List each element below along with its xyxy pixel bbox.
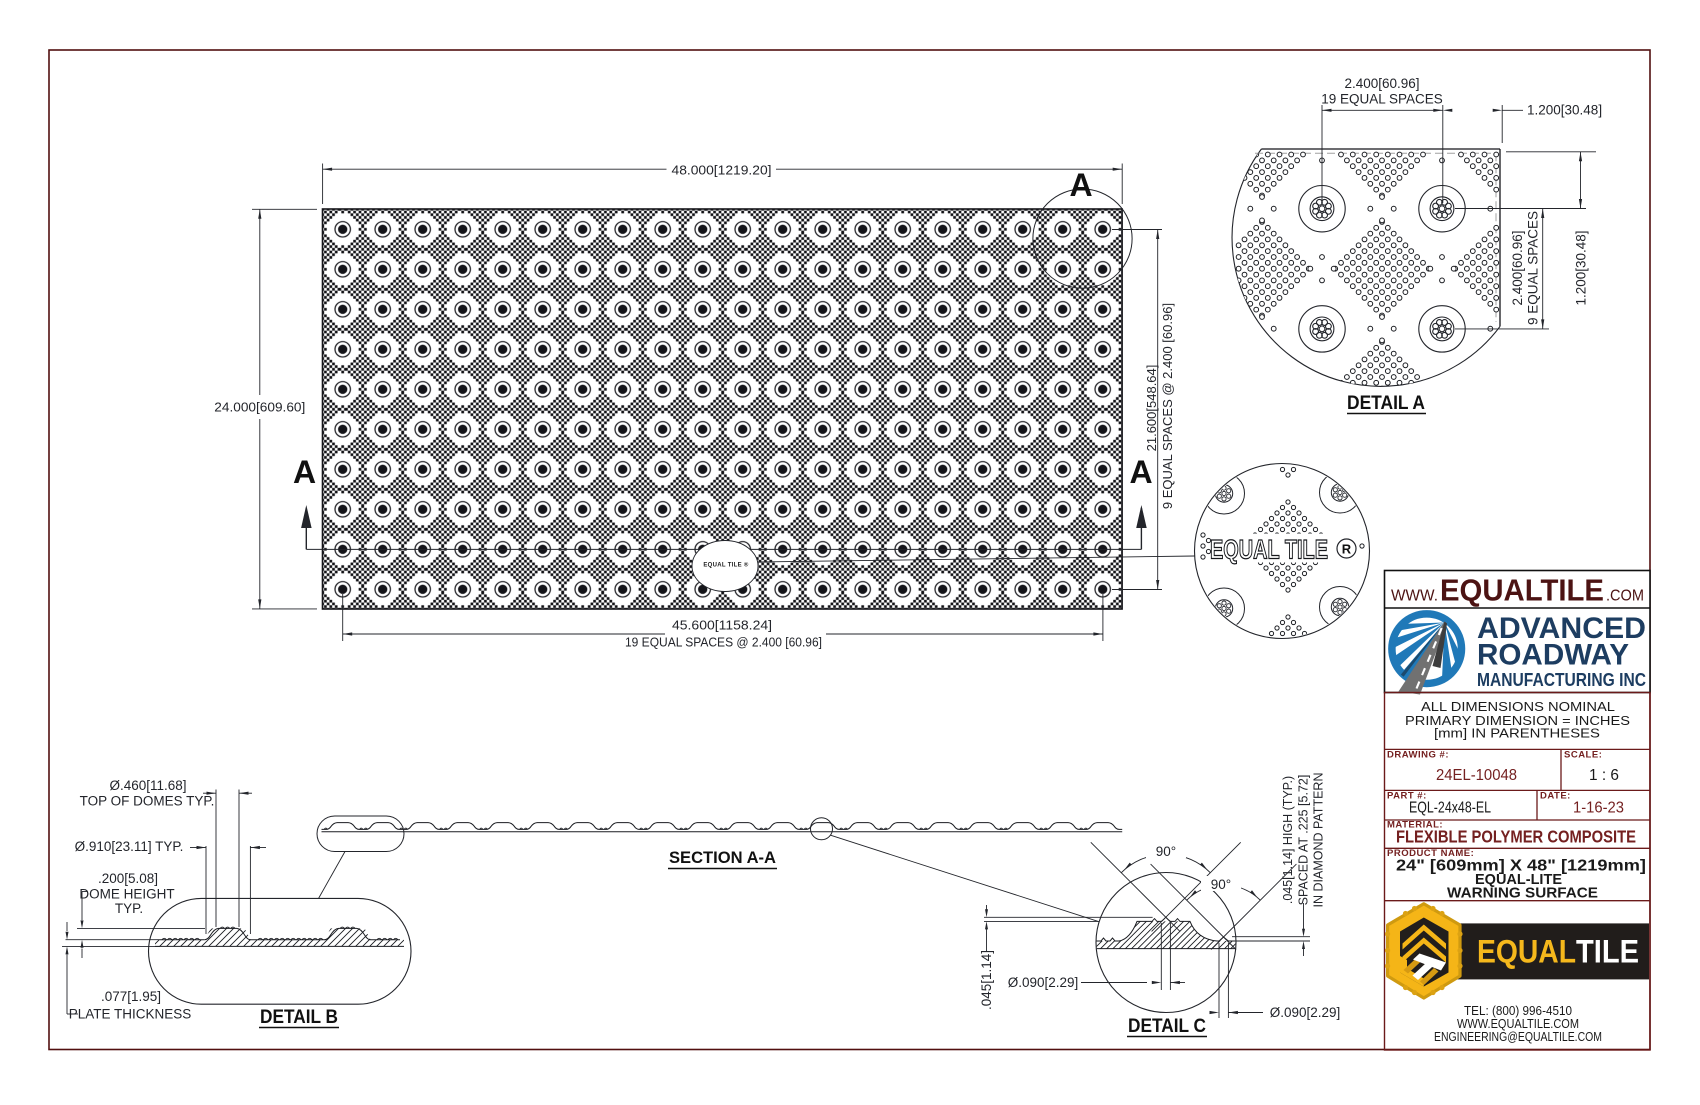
svg-text:A: A (1069, 167, 1092, 203)
svg-text:MANUFACTURING INC: MANUFACTURING INC (1477, 669, 1646, 690)
svg-text:2.400[60.96]: 2.400[60.96] (1510, 230, 1525, 305)
svg-text:.045[1.14] HIGH (TYP.): .045[1.14] HIGH (TYP.) (1281, 776, 1295, 904)
svg-text:[mm] IN PARENTHESES: [mm] IN PARENTHESES (1434, 727, 1600, 741)
svg-text:19 EQUAL SPACES @ 2.400 [60.96: 19 EQUAL SPACES @ 2.400 [60.96] (625, 635, 822, 650)
svg-text:SPACED AT .225 [5.72]: SPACED AT .225 [5.72] (1297, 775, 1311, 906)
svg-text:TOP OF DOMES TYP.: TOP OF DOMES TYP. (80, 794, 215, 809)
svg-text:PLATE THICKNESS: PLATE THICKNESS (69, 1007, 192, 1022)
svg-text:R: R (1342, 542, 1352, 557)
svg-text:ENGINEERING@EQUALTILE.COM: ENGINEERING@EQUALTILE.COM (1434, 1029, 1602, 1044)
svg-text:TYP.: TYP. (115, 901, 143, 916)
svg-text:SECTION A-A: SECTION A-A (669, 849, 776, 867)
svg-text:DETAIL A: DETAIL A (1347, 392, 1425, 414)
svg-text:90°: 90° (1156, 844, 1176, 859)
svg-text:1 : 6: 1 : 6 (1589, 767, 1619, 784)
svg-text:2.400[60.96]: 2.400[60.96] (1344, 76, 1419, 91)
svg-text:EQUAL TILE ®: EQUAL TILE ® (703, 562, 749, 569)
svg-text:Ø.910[23.11] TYP.: Ø.910[23.11] TYP. (75, 839, 184, 854)
svg-text:.200[5.08]: .200[5.08] (98, 871, 158, 886)
svg-text:45.600[1158.24]: 45.600[1158.24] (672, 618, 772, 633)
svg-text:IN DIAMOND PATTERN: IN DIAMOND PATTERN (1312, 773, 1326, 908)
svg-text:EQUALTILE: EQUALTILE (1440, 574, 1604, 608)
svg-text:DETAIL B: DETAIL B (260, 1006, 338, 1028)
svg-text:ROADWAY: ROADWAY (1477, 639, 1629, 672)
svg-text:EQUAL TILE: EQUAL TILE (1210, 535, 1328, 565)
svg-text:Ø.460[11.68]: Ø.460[11.68] (109, 778, 186, 793)
svg-text:A: A (1129, 454, 1152, 490)
svg-text:.077[1.95]: .077[1.95] (101, 989, 161, 1004)
svg-text:SCALE:: SCALE: (1564, 750, 1602, 761)
svg-text:19 EQUAL SPACES: 19 EQUAL SPACES (1321, 92, 1443, 107)
svg-text:DRAWING #:: DRAWING #: (1387, 750, 1449, 761)
svg-text:TILE: TILE (1576, 934, 1639, 970)
svg-text:Ø.090[2.29]: Ø.090[2.29] (1008, 975, 1079, 990)
svg-text:.045[1.14]: .045[1.14] (979, 950, 994, 1010)
svg-text:WWW.: WWW. (1391, 588, 1438, 605)
svg-text:.COM: .COM (1606, 588, 1644, 605)
svg-text:EQUAL: EQUAL (1477, 934, 1576, 970)
svg-text:1.200[30.48]: 1.200[30.48] (1574, 230, 1589, 305)
svg-text:Ø.090[2.29]: Ø.090[2.29] (1270, 1005, 1341, 1020)
svg-text:DATE:: DATE: (1540, 791, 1571, 802)
svg-text:DOME HEIGHT: DOME HEIGHT (79, 887, 174, 902)
svg-text:DETAIL C: DETAIL C (1128, 1015, 1206, 1037)
svg-text:EQL-24x48-EL: EQL-24x48-EL (1409, 800, 1491, 817)
svg-text:90°: 90° (1211, 877, 1231, 892)
svg-text:21.600[548.64]: 21.600[548.64] (1144, 365, 1159, 452)
svg-text:24EL-10048: 24EL-10048 (1436, 767, 1517, 784)
svg-text:A: A (293, 454, 316, 490)
svg-text:FLEXIBLE POLYMER COMPOSITE: FLEXIBLE POLYMER COMPOSITE (1396, 827, 1636, 847)
svg-text:9 EQUAL SPACES: 9 EQUAL SPACES (1526, 211, 1541, 325)
svg-text:48.000[1219.20]: 48.000[1219.20] (672, 162, 772, 177)
svg-text:9 EQUAL SPACES @ 2.400 [60.96]: 9 EQUAL SPACES @ 2.400 [60.96] (1160, 303, 1175, 509)
svg-text:1-16-23: 1-16-23 (1573, 800, 1624, 817)
svg-text:1.200[30.48]: 1.200[30.48] (1527, 103, 1602, 118)
svg-text:24.000[609.60]: 24.000[609.60] (214, 400, 305, 415)
svg-text:ALL DIMENSIONS NOMINAL: ALL DIMENSIONS NOMINAL (1421, 700, 1615, 714)
svg-text:WARNING SURFACE: WARNING SURFACE (1447, 885, 1598, 902)
